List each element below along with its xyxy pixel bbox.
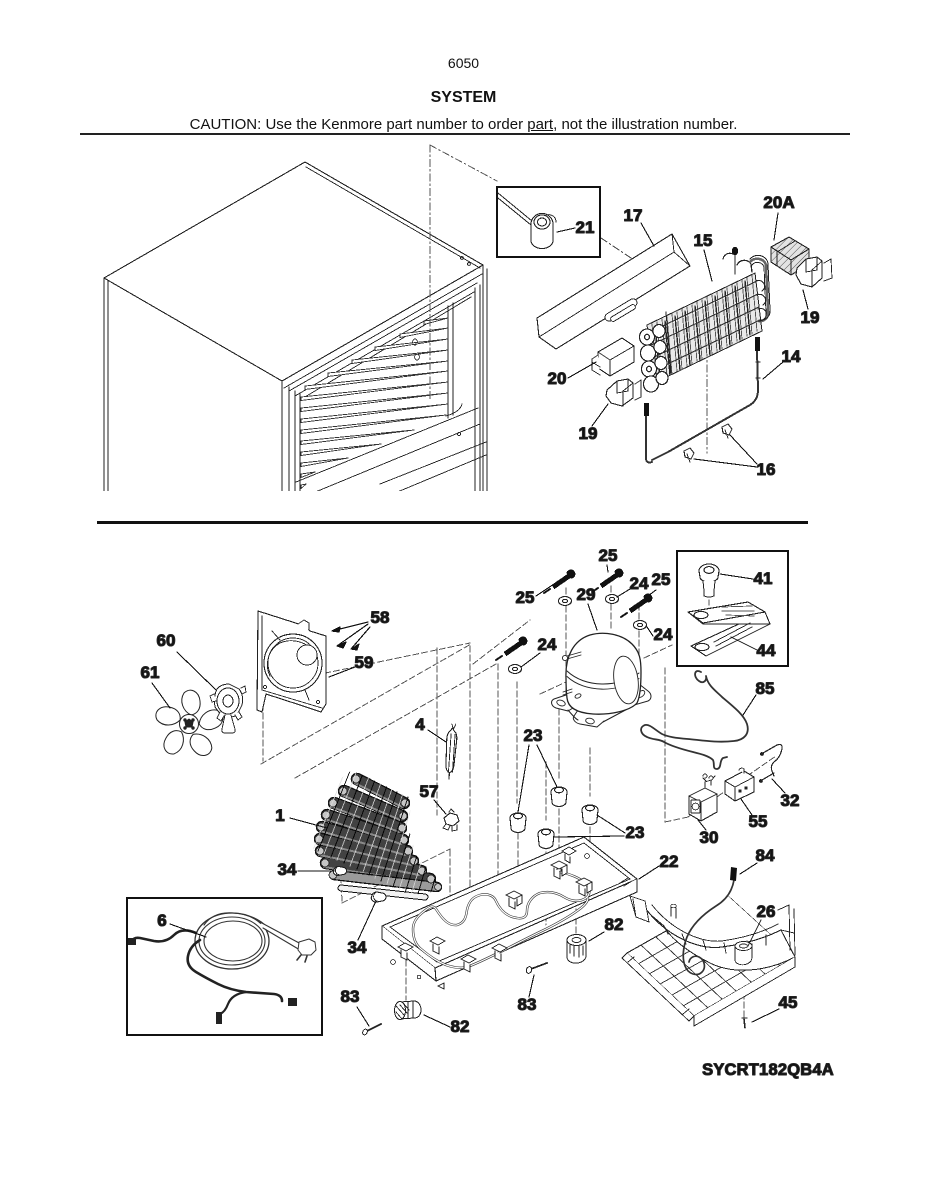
svg-text:25: 25 bbox=[599, 546, 618, 565]
svg-text:84: 84 bbox=[756, 846, 775, 865]
svg-text:82: 82 bbox=[605, 915, 624, 934]
svg-text:21: 21 bbox=[576, 218, 595, 237]
svg-text:30: 30 bbox=[700, 828, 719, 847]
svg-text:25: 25 bbox=[652, 570, 671, 589]
svg-text:24: 24 bbox=[538, 635, 557, 654]
svg-text:32: 32 bbox=[781, 791, 800, 810]
svg-text:85: 85 bbox=[756, 679, 775, 698]
svg-text:4: 4 bbox=[415, 715, 425, 734]
svg-text:15: 15 bbox=[694, 231, 713, 250]
svg-text:59: 59 bbox=[355, 653, 374, 672]
svg-text:44: 44 bbox=[757, 641, 776, 660]
svg-text:83: 83 bbox=[518, 995, 537, 1014]
svg-text:29: 29 bbox=[577, 585, 596, 604]
svg-text:6: 6 bbox=[157, 911, 166, 930]
svg-text:24: 24 bbox=[654, 625, 673, 644]
svg-text:60: 60 bbox=[157, 631, 176, 650]
svg-text:82: 82 bbox=[451, 1017, 470, 1036]
svg-text:26: 26 bbox=[757, 902, 776, 921]
svg-text:17: 17 bbox=[624, 206, 643, 225]
svg-text:61: 61 bbox=[141, 663, 160, 682]
svg-text:23: 23 bbox=[626, 823, 645, 842]
svg-text:14: 14 bbox=[782, 347, 801, 366]
svg-text:20A: 20A bbox=[763, 193, 794, 212]
svg-text:34: 34 bbox=[278, 860, 297, 879]
svg-text:24: 24 bbox=[630, 574, 649, 593]
svg-text:19: 19 bbox=[801, 308, 820, 327]
svg-text:45: 45 bbox=[779, 993, 798, 1012]
svg-text:16: 16 bbox=[757, 460, 776, 479]
svg-text:57: 57 bbox=[420, 782, 439, 801]
svg-text:22: 22 bbox=[660, 852, 679, 871]
svg-text:34: 34 bbox=[348, 938, 367, 957]
svg-text:25: 25 bbox=[516, 588, 535, 607]
svg-text:20: 20 bbox=[548, 369, 567, 388]
svg-text:58: 58 bbox=[371, 608, 390, 627]
svg-text:SYCRT182QB4A: SYCRT182QB4A bbox=[702, 1061, 834, 1079]
svg-text:83: 83 bbox=[341, 987, 360, 1006]
svg-text:1: 1 bbox=[275, 806, 284, 825]
svg-text:23: 23 bbox=[524, 726, 543, 745]
svg-text:41: 41 bbox=[754, 569, 773, 588]
svg-text:19: 19 bbox=[579, 424, 598, 443]
